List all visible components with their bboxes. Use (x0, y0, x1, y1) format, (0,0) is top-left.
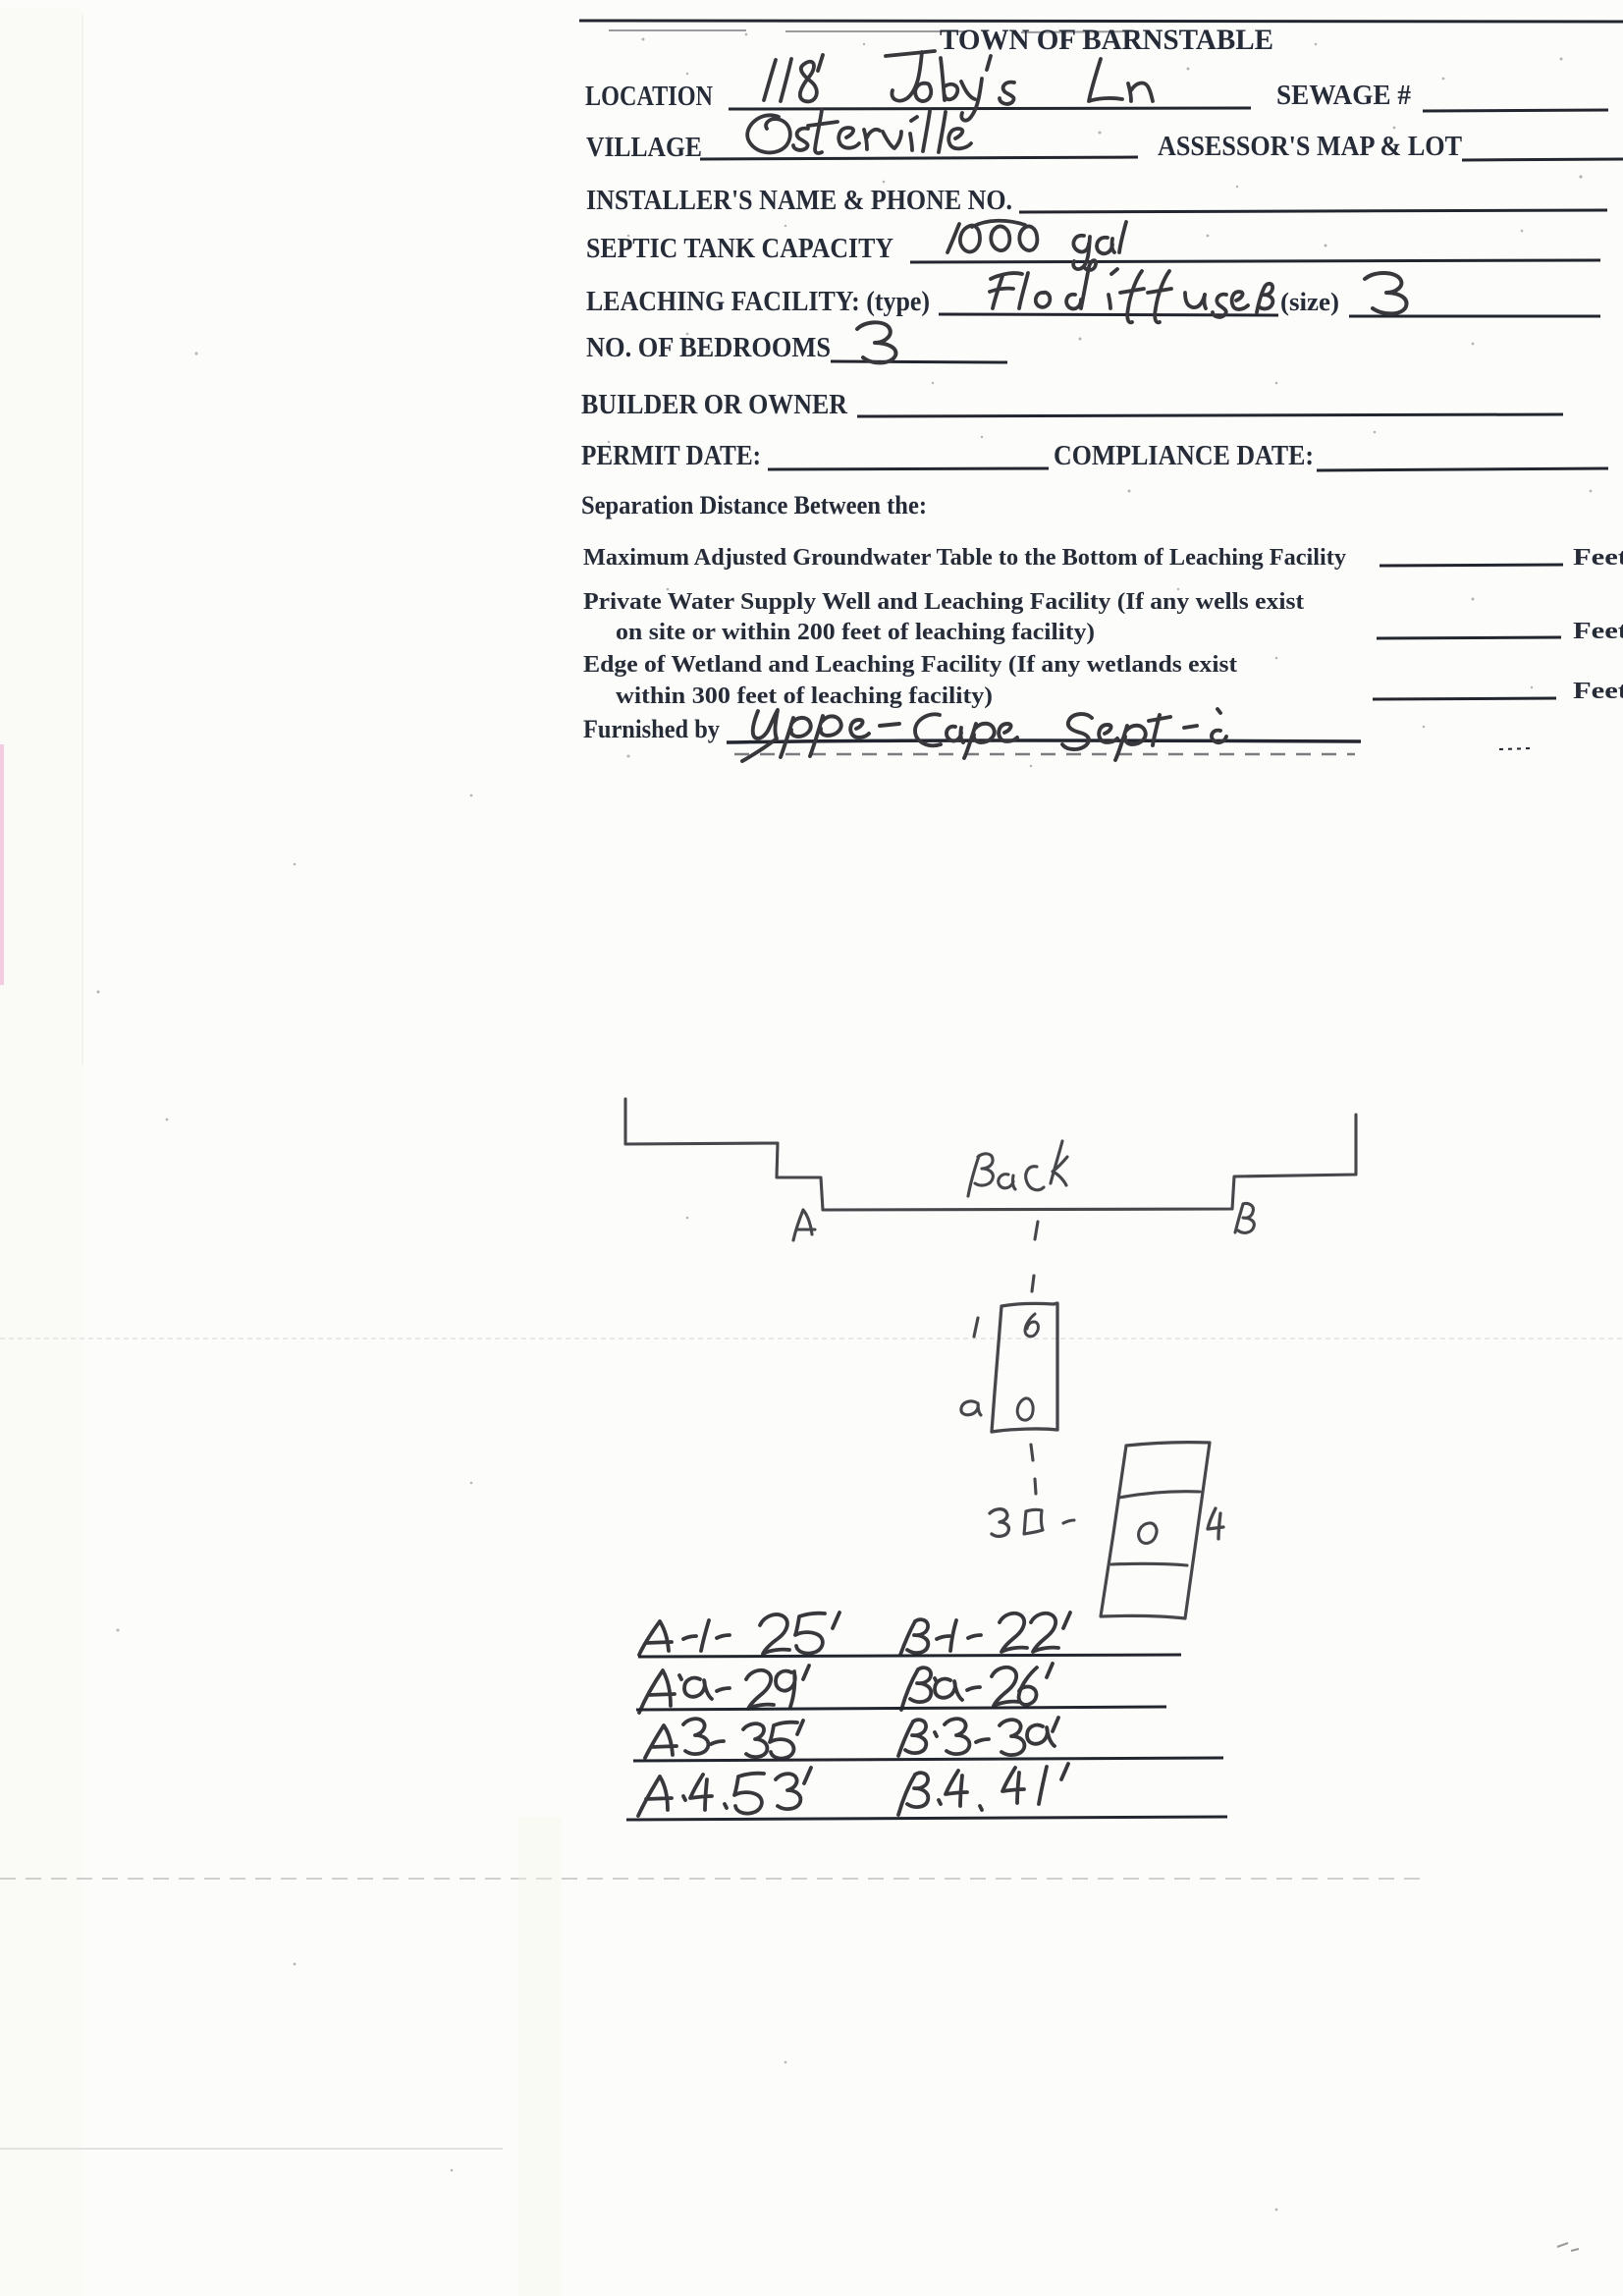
svg-text:Feet: Feet (1573, 679, 1623, 704)
svg-text:(size): (size) (1280, 288, 1339, 316)
svg-text:Separation Distance Between th: Separation Distance Between the: (581, 491, 927, 519)
svg-text:INSTALLER'S NAME & PHONE NO.: INSTALLER'S NAME & PHONE NO. (586, 186, 1012, 216)
svg-text:ASSESSOR'S MAP & LOT: ASSESSOR'S MAP & LOT (1158, 132, 1462, 162)
svg-text:within 300 feet of leaching fa: within 300 feet of leaching facility) (616, 683, 993, 709)
svg-text:VILLAGE: VILLAGE (586, 132, 702, 163)
svg-text:Feet: Feet (1573, 619, 1623, 644)
svg-text:Furnished by: Furnished by (583, 715, 720, 743)
svg-text:SEWAGE #: SEWAGE # (1276, 81, 1411, 111)
svg-text:Edge of Wetland and Leaching F: Edge of Wetland and Leaching Facility (I… (583, 652, 1237, 678)
svg-text:NO. OF BEDROOMS: NO. OF BEDROOMS (586, 333, 831, 363)
svg-text:LOCATION: LOCATION (585, 81, 713, 112)
svg-text:BUILDER OR OWNER: BUILDER OR OWNER (581, 389, 848, 420)
svg-text:Private Water Supply Well and: Private Water Supply Well and Leaching F… (583, 589, 1304, 615)
svg-text:TOWN OF BARNSTABLE: TOWN OF BARNSTABLE (940, 24, 1273, 56)
svg-text:LEACHING FACILITY: (type): LEACHING FACILITY: (type) (586, 287, 930, 317)
svg-text:on site or within 200 feet of: on site or within 200 feet of leaching f… (616, 620, 1095, 645)
svg-text:Maximum Adjusted Groundwater T: Maximum Adjusted Groundwater Table to th… (583, 545, 1346, 571)
svg-text:COMPLIANCE DATE:: COMPLIANCE DATE: (1054, 441, 1314, 471)
svg-text:Feet: Feet (1573, 545, 1623, 571)
svg-text:PERMIT DATE:: PERMIT DATE: (581, 441, 761, 471)
svg-text:SEPTIC TANK CAPACITY: SEPTIC TANK CAPACITY (586, 234, 893, 264)
